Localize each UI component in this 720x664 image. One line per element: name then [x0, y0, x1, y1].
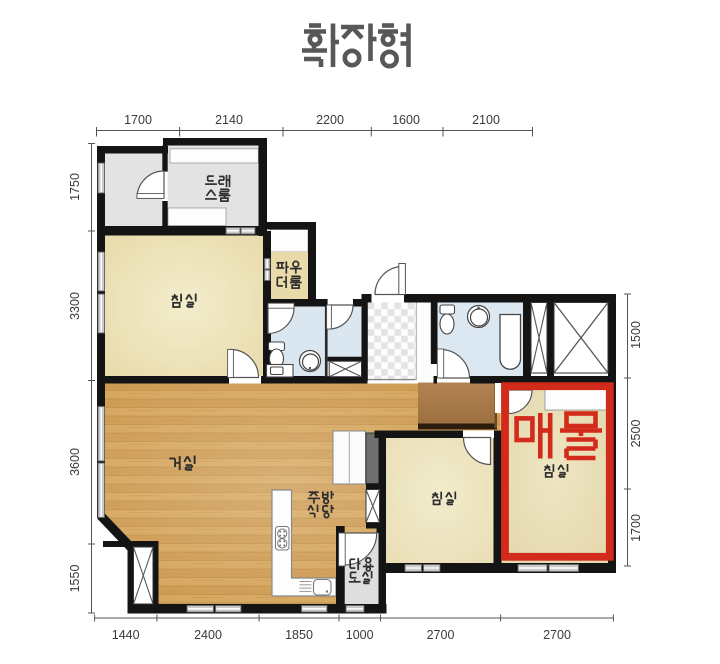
- svg-text:1600: 1600: [392, 113, 420, 127]
- svg-text:2400: 2400: [194, 628, 222, 642]
- svg-text:1750: 1750: [68, 173, 82, 201]
- svg-text:2200: 2200: [316, 113, 344, 127]
- svg-text:2100: 2100: [472, 113, 500, 127]
- svg-text:1440: 1440: [112, 628, 140, 642]
- svg-text:1700: 1700: [629, 514, 643, 542]
- svg-text:3600: 3600: [68, 448, 82, 476]
- svg-text:1850: 1850: [285, 628, 313, 642]
- svg-text:2140: 2140: [215, 113, 243, 127]
- svg-text:1700: 1700: [124, 113, 152, 127]
- svg-text:2500: 2500: [629, 420, 643, 448]
- svg-text:1500: 1500: [629, 321, 643, 349]
- svg-text:1000: 1000: [346, 628, 374, 642]
- svg-text:1550: 1550: [68, 565, 82, 593]
- svg-text:2700: 2700: [427, 628, 455, 642]
- svg-text:3300: 3300: [68, 292, 82, 320]
- svg-text:2700: 2700: [543, 628, 571, 642]
